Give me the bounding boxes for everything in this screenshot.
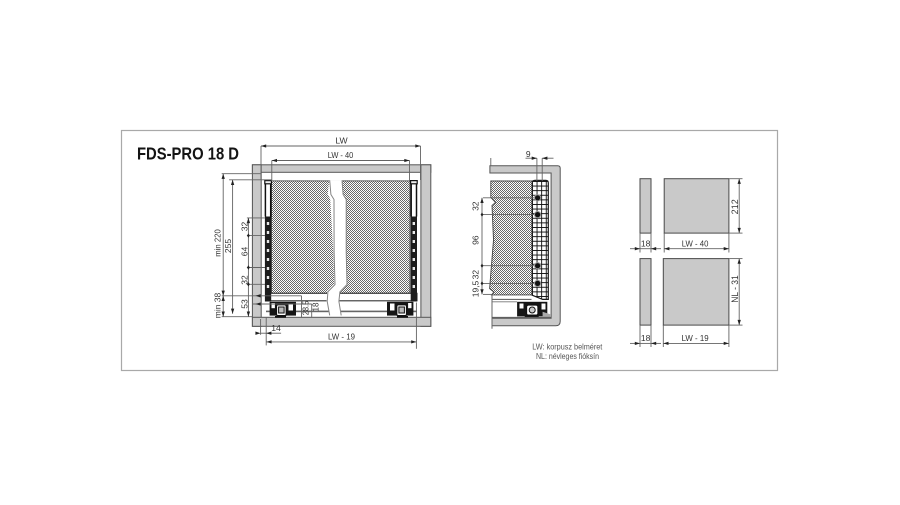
svg-text:NL: névleges fióksín: NL: névleges fióksín <box>536 352 599 361</box>
svg-text:32: 32 <box>239 275 249 285</box>
svg-text:9: 9 <box>526 149 531 159</box>
svg-text:14: 14 <box>271 323 281 333</box>
svg-text:min 220: min 220 <box>213 229 223 257</box>
svg-text:18: 18 <box>312 302 321 311</box>
svg-text:LW: LW <box>335 136 348 146</box>
svg-text:LW - 40: LW - 40 <box>682 238 709 248</box>
svg-text:64: 64 <box>239 247 249 257</box>
svg-text:32: 32 <box>471 270 481 280</box>
svg-text:LW - 40: LW - 40 <box>328 150 354 160</box>
svg-text:18: 18 <box>641 238 651 248</box>
svg-text:LW - 19: LW - 19 <box>682 333 709 343</box>
svg-text:96: 96 <box>471 235 481 245</box>
svg-text:32: 32 <box>471 201 481 211</box>
svg-text:FDS-PRO 18 D: FDS-PRO 18 D <box>137 143 239 163</box>
svg-text:32: 32 <box>239 222 249 232</box>
svg-text:LW - 19: LW - 19 <box>328 331 355 341</box>
svg-text:28.5: 28.5 <box>301 300 310 315</box>
svg-text:NL - 31: NL - 31 <box>730 275 740 303</box>
svg-text:19,5: 19,5 <box>471 280 481 297</box>
svg-text:LW: korpusz belméret: LW: korpusz belméret <box>532 343 603 352</box>
svg-text:min 38: min 38 <box>213 292 223 318</box>
svg-text:212: 212 <box>730 199 740 214</box>
svg-text:255: 255 <box>223 239 233 253</box>
svg-text:53: 53 <box>239 299 249 309</box>
svg-text:18: 18 <box>641 333 651 343</box>
